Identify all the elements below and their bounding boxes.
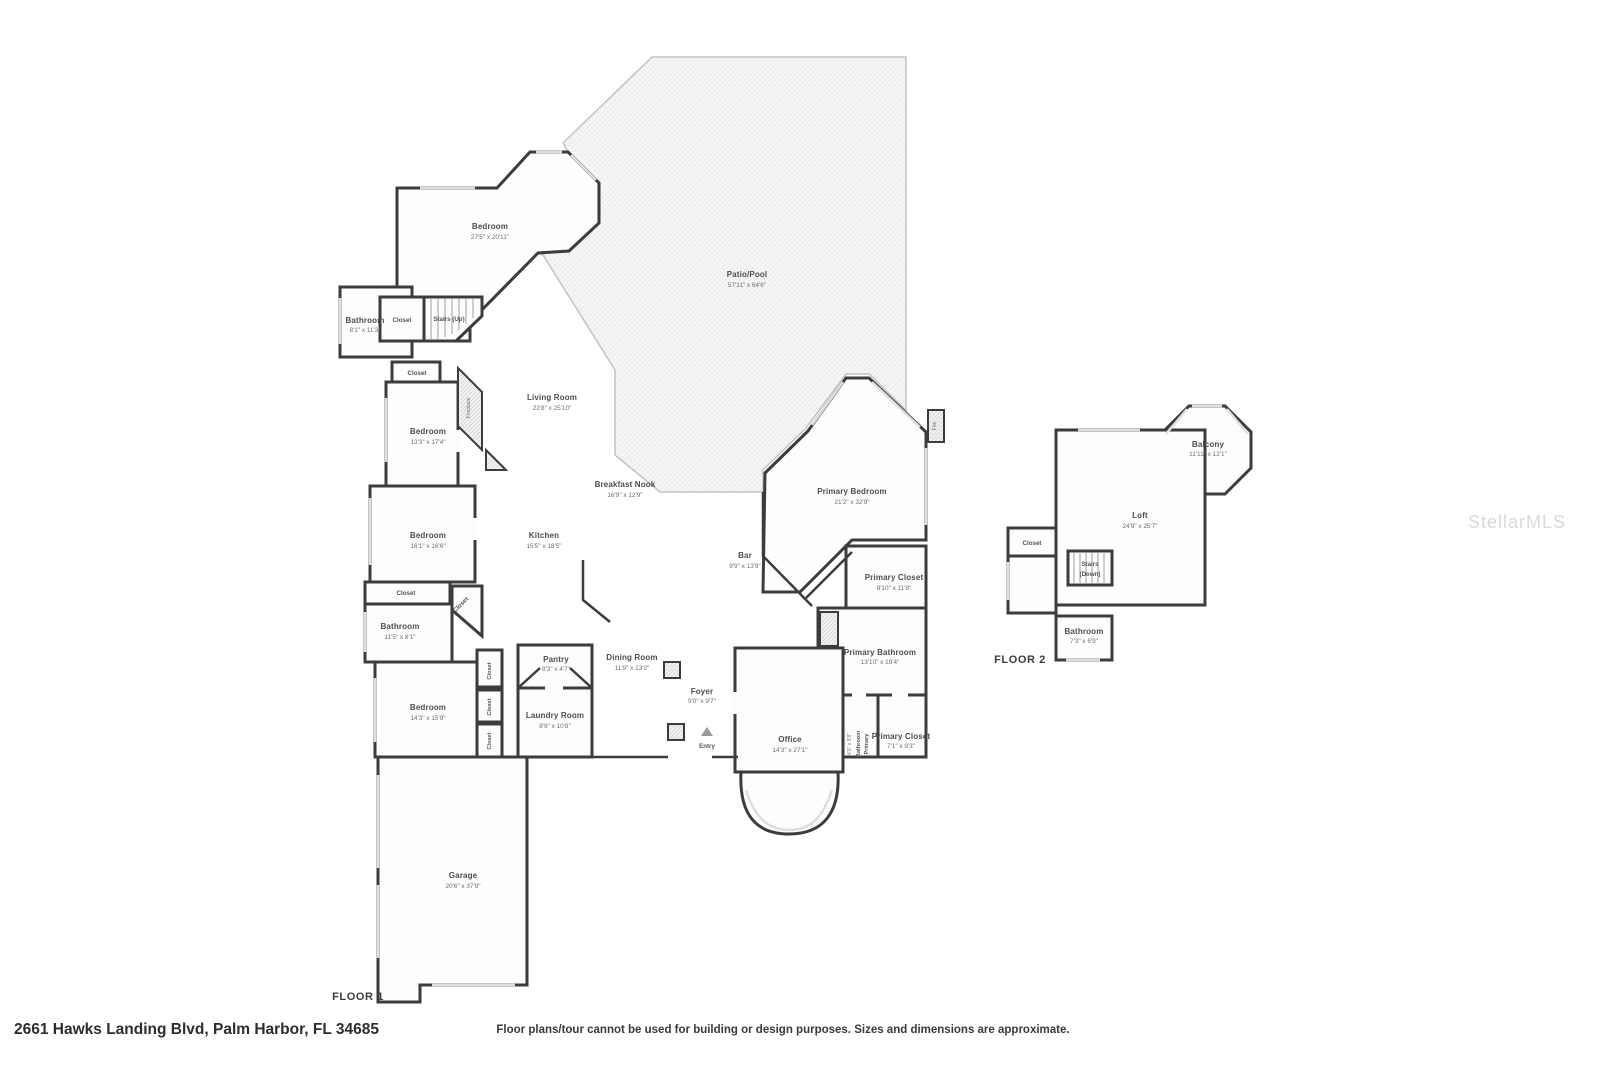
room-label-patio-pool: Patio/Pool (727, 270, 768, 279)
column-1 (664, 662, 680, 678)
entry-arrow-icon (701, 727, 713, 736)
room-label-fireplace: Fireplace (466, 398, 472, 419)
room-label-breakfast-nook: Breakfast Nook (595, 480, 656, 489)
room-label-primary-closet-2: Primary Closet (872, 732, 931, 741)
room-dims-bedroom-2: 13'3" x 17'4" (410, 439, 445, 446)
room-label-closet-c: Closet (397, 590, 416, 597)
floor-plan-page: Bedroom 27'5" x 20'11" Bathroom 8'1" x 1… (0, 0, 1600, 1066)
room-label-balcony: Balcony (1192, 440, 1225, 449)
room-label-fire-feature: Fire (932, 421, 938, 430)
room-label-bedroom-3: Bedroom (410, 531, 446, 540)
column-2 (668, 724, 684, 740)
room-office-bay (741, 772, 838, 834)
address-text: 2661 Hawks Landing Blvd, Palm Harbor, FL… (14, 1021, 379, 1038)
room-dims-bathroom-top: 8'1" x 11'3" (349, 327, 380, 334)
floor1-title: FLOOR 1 (332, 991, 384, 1003)
room-dims-garage: 20'6" x 37'9" (445, 883, 480, 890)
room-label-closet-h: Closet (1023, 540, 1042, 547)
room-label-stairs-down-line2: (Down) (1080, 571, 1101, 578)
room-dims-primary-bathroom-2: 4'0" x 9'8" (847, 733, 853, 755)
room-label-primary-bathroom: Primary Bathroom (844, 648, 916, 657)
room-label-closet-a: Closet (393, 317, 412, 324)
room-label-loft: Loft (1132, 511, 1148, 520)
floor-plan-canvas: Bedroom 27'5" x 20'11" Bathroom 8'1" x 1… (0, 0, 1600, 1066)
room-label-stairs-down-line1: Stairs (1081, 561, 1099, 568)
room-dims-breakfast-nook: 16'9" x 12'9" (607, 492, 642, 499)
room-dims-kitchen: 15'5" x 18'5" (526, 543, 561, 550)
chimney-shape (486, 450, 506, 470)
room-label-closet-f: Closet (487, 698, 493, 715)
room-dims-loft: 24'9" x 25'7" (1122, 523, 1157, 530)
room-dims-primary-bedroom: 21'2" x 32'9" (834, 499, 869, 506)
floor2-title: FLOOR 2 (994, 654, 1046, 666)
room-dims-laundry: 8'9" x 10'8" (539, 723, 571, 730)
room-label-living-room: Living Room (527, 393, 577, 402)
wall-kitchen-divider (583, 560, 610, 622)
room-label-bedroom-2: Bedroom (410, 427, 446, 436)
room-label-closet-g: Closet (487, 732, 493, 749)
room-dims-bedroom-3: 16'1" x 16'6" (410, 543, 445, 550)
room-dims-primary-closet-2: 7'1" x 9'3" (887, 743, 915, 750)
room-label-bathroom-top: Bathroom (346, 316, 385, 325)
room-label-primary-bathroom-2-line1: Primary (864, 733, 870, 755)
room-dims-dining-room: 11'9" x 13'2" (615, 665, 650, 672)
room-label-stairs-up: Stairs (Up) (433, 316, 464, 323)
room-dims-bedroom-4: 14'3" x 15'9" (410, 715, 445, 722)
room-dims-bar: 9'9" x 13'9" (729, 563, 761, 570)
room-dims-bathroom-2: 11'5" x 8'1" (384, 634, 415, 641)
room-dims-balcony: 11'11" x 12'1" (1189, 451, 1227, 458)
room-label-bedroom-4: Bedroom (410, 703, 446, 712)
bathtub (820, 612, 838, 646)
room-dims-bedroom-top: 27'5" x 20'11" (471, 234, 509, 241)
room-label-closet-e: Closet (487, 662, 493, 679)
disclaimer-text: Floor plans/tour cannot be used for buil… (496, 1024, 1069, 1036)
room-label-laundry: Laundry Room (526, 711, 584, 720)
room-label-bedroom-top: Bedroom (472, 222, 508, 231)
watermark: StellarMLS (1468, 512, 1566, 532)
room-dims-foyer: 9'0" x 9'7" (688, 698, 716, 705)
room-dims-patio-pool: 57'11" x 64'6" (728, 282, 766, 289)
room-label-dining-room: Dining Room (606, 653, 657, 662)
room-dims-living-room: 22'8" x 25'10" (533, 405, 572, 412)
room-label-bathroom-2: Bathroom (381, 622, 420, 631)
room-dims-bathroom-3: 7'3" x 6'9" (1070, 638, 1098, 645)
room-label-pantry: Pantry (543, 655, 569, 664)
room-dims-primary-closet-1: 9'10" x 11'8" (877, 585, 912, 592)
room-label-bathroom-3: Bathroom (1065, 627, 1104, 636)
room-label-garage: Garage (449, 871, 478, 880)
room-label-closet-b: Closet (408, 370, 427, 377)
room-stairs-down (1068, 551, 1112, 585)
room-label-office: Office (778, 735, 802, 744)
room-bathroom-2 (365, 604, 452, 662)
room-label-primary-closet-1: Primary Closet (865, 573, 924, 582)
room-label-kitchen: Kitchen (529, 531, 559, 540)
room-dims-office: 14'3" x 27'1" (772, 747, 807, 754)
room-label-primary-bathroom-2-line2: Bathroom (856, 731, 862, 757)
room-dims-primary-bathroom: 13'10" x 19'4" (861, 659, 900, 666)
room-label-foyer: Foyer (691, 687, 714, 696)
room-label-entry: Entry (699, 743, 715, 750)
room-label-bar: Bar (738, 551, 752, 560)
room-dims-pantry: 8'3" x 4'7" (542, 666, 570, 673)
room-label-primary-bedroom: Primary Bedroom (817, 487, 886, 496)
